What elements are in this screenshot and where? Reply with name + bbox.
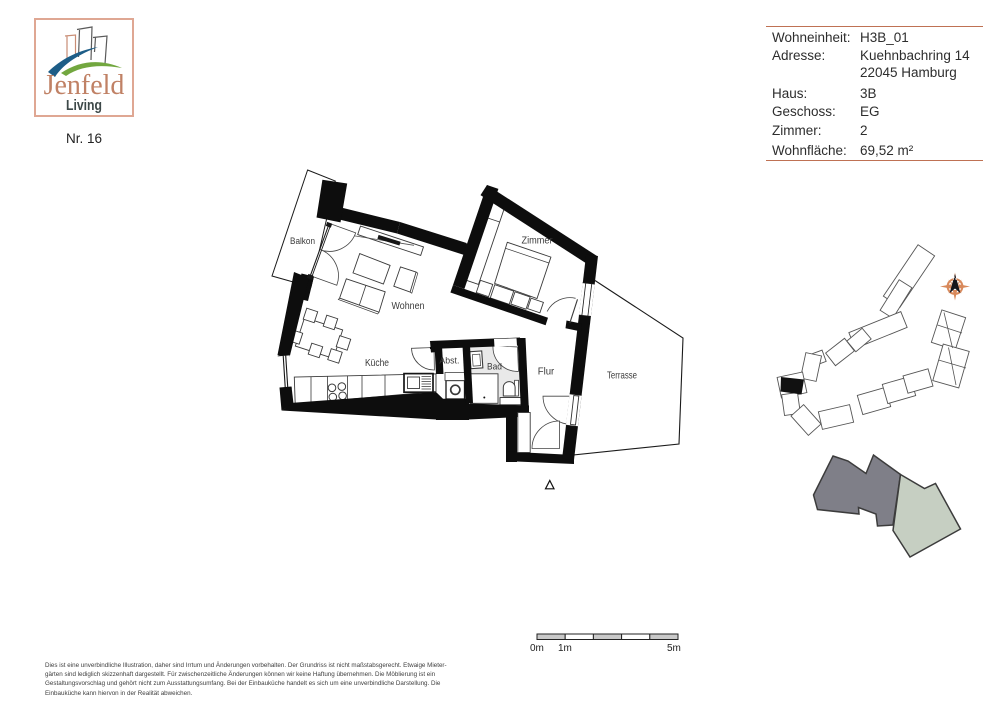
svg-text:Terrasse: Terrasse [607, 370, 637, 382]
svg-text:Küche: Küche [365, 357, 389, 369]
svg-text:Flur: Flur [538, 366, 555, 378]
svg-text:Zimmer: Zimmer [522, 235, 553, 247]
svg-text:Balkon: Balkon [290, 236, 315, 246]
svg-text:0m: 0m [530, 643, 544, 654]
svg-text:5m: 5m [667, 643, 681, 654]
svg-text:N: N [953, 276, 957, 282]
svg-text:1m: 1m [558, 643, 572, 654]
svg-text:Wohnen: Wohnen [392, 300, 425, 312]
svg-text:Abst.: Abst. [439, 356, 459, 367]
svg-text:Bad: Bad [487, 362, 502, 373]
